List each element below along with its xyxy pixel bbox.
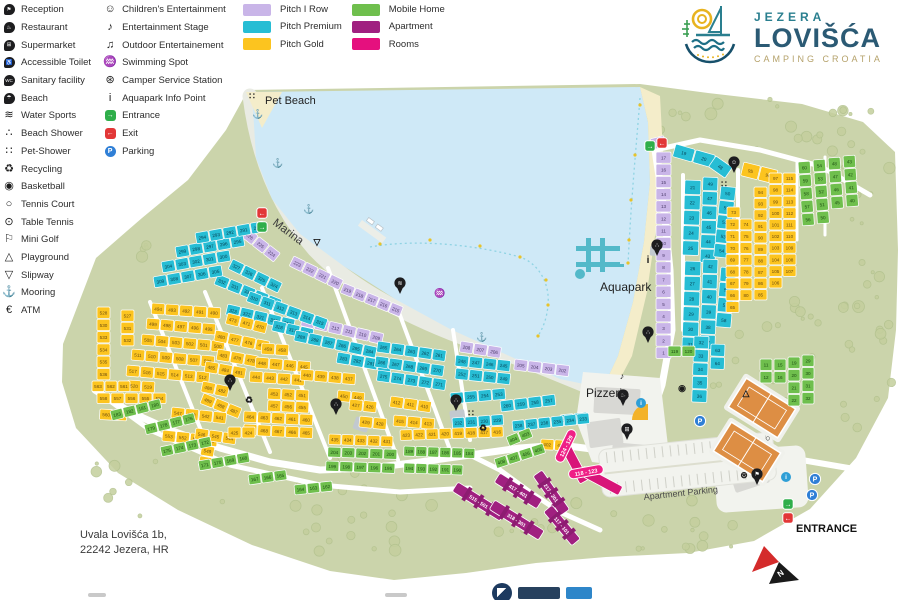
svg-text:238: 238 [514,423,523,429]
svg-text:107: 107 [786,269,794,274]
svg-text:80: 80 [743,293,749,298]
svg-text:114: 114 [786,188,794,193]
svg-text:31: 31 [805,384,811,389]
legend-item-pet-shower: ∷Pet-Shower [0,143,91,161]
mini-golf-icon: ⚐ [2,234,16,245]
svg-text:46: 46 [707,210,713,215]
svg-text:34: 34 [698,367,704,372]
svg-text:535: 535 [100,360,108,365]
pitch-type-label: Rooms [389,39,419,50]
legend-item-label: Supermarket [21,40,75,51]
svg-text:468: 468 [260,428,268,433]
svg-text:418: 418 [467,430,475,435]
svg-text:36: 36 [697,394,703,399]
svg-text:254: 254 [481,393,490,399]
svg-text:428: 428 [376,421,385,427]
info-badge: i [781,472,791,482]
legend-item-parking: PParking [101,143,226,161]
pitch-type-pitch-premium: Pitch Premium [243,18,342,35]
camper-service-station-icon: ⊛ [103,75,117,86]
partner-logo-wordmark2 [566,587,592,599]
svg-text:69: 69 [730,258,736,263]
svg-text:459: 459 [264,346,272,352]
svg-text:→: → [259,224,266,231]
svg-text:562: 562 [107,384,115,389]
svg-text:560: 560 [102,412,110,417]
svg-text:56: 56 [805,217,811,222]
svg-text:50: 50 [725,191,731,197]
svg-text:33: 33 [698,354,704,359]
svg-text:402: 402 [543,442,551,447]
svg-text:465: 465 [302,430,310,435]
svg-text:71: 71 [730,234,736,239]
svg-text:530: 530 [100,323,108,328]
svg-text:22: 22 [690,200,696,205]
svg-text:556: 556 [128,396,136,401]
legend-item-label: Swimming Spot [122,57,188,68]
partner-logo-icon [492,583,512,600]
svg-text:←: ← [659,140,666,147]
svg-text:519: 519 [144,384,152,390]
svg-text:63: 63 [715,348,721,353]
svg-text:105: 105 [772,269,780,274]
svg-text:259: 259 [517,401,526,407]
svg-text:463: 463 [260,415,268,420]
svg-text:43: 43 [847,159,853,164]
svg-text:414: 414 [410,420,419,426]
color-swatch [243,4,271,16]
svg-text:236: 236 [540,420,549,426]
svg-text:103: 103 [772,246,780,251]
parking-badge: P [694,415,705,426]
svg-text:47: 47 [833,174,839,179]
pitch-cluster: 563562561 [92,381,130,392]
buoy [638,103,641,106]
pitch-cluster: 435434433432431 [329,434,393,447]
svg-text:231: 231 [467,419,475,425]
svg-text:498: 498 [163,323,172,329]
svg-text:100: 100 [772,211,780,216]
svg-text:21: 21 [791,386,797,391]
svg-text:12: 12 [661,216,667,221]
slipway-icon: ▽ [2,270,16,281]
buoy [627,238,630,241]
legend-item-mini-golf: ⚐Mini Golf [0,231,91,249]
svg-text:42: 42 [708,264,714,269]
svg-text:←: ← [259,210,266,217]
svg-text:99: 99 [773,199,779,204]
pitch-cluster: 74757677787980 [740,219,752,301]
pitch-type-col1: Pitch I RowPitch PremiumPitch Gold [243,1,342,53]
pet-area-icon: ∷ [721,179,727,189]
svg-text:451: 451 [298,393,306,398]
pitch-type-label: Pitch Premium [280,21,342,32]
svg-text:440: 440 [303,373,312,379]
svg-text:203: 203 [344,450,352,455]
svg-text:502: 502 [186,341,195,347]
svg-text:192: 192 [429,467,437,472]
legend-item-outdoor-entertainement: ♫Outdoor Entertainement [101,36,226,54]
pitch-type-label: Pitch I Row [280,4,328,15]
svg-text:54: 54 [719,248,725,254]
pitch-cluster: 453452451 [267,388,309,401]
svg-text:458: 458 [278,347,286,353]
parking-badge: P [809,473,820,484]
svg-text:202: 202 [558,368,567,374]
svg-text:→: → [785,501,792,508]
legend-item-label: Outdoor Entertainement [122,40,223,51]
svg-text:32: 32 [805,396,811,401]
legend-item-label: Exit [122,128,138,139]
brand-name-top: JEZERA [754,10,883,24]
legend-item-label: Parking [122,146,154,157]
svg-text:250: 250 [486,374,495,380]
svg-text:45: 45 [834,200,840,205]
svg-text:232: 232 [454,420,462,426]
svg-text:434: 434 [344,438,352,443]
svg-text:461: 461 [288,417,296,422]
svg-text:47: 47 [707,196,713,201]
svg-text:184: 184 [465,451,473,456]
svg-text:15: 15 [777,363,783,368]
svg-text:35: 35 [697,380,703,385]
svg-text:511: 511 [134,353,142,359]
svg-text:65: 65 [730,305,736,310]
services-legend-col1: ⚑Reception♨Restaurant⊞Supermarket♿Access… [0,1,91,319]
legend-item-camper-service-station: ⊛Camper Service Station [101,72,226,90]
svg-text:38: 38 [705,325,711,330]
svg-text:533: 533 [100,335,108,340]
address-line2: 22242 Jezera, HR [80,543,169,558]
svg-text:253: 253 [495,392,504,398]
svg-text:437: 437 [345,376,354,382]
svg-text:119: 119 [671,349,679,354]
svg-text:501: 501 [200,342,209,348]
svg-text:252: 252 [458,372,467,378]
aquapark-info-icon: i [647,255,650,266]
legend-item-label: ATM [21,305,40,316]
svg-text:93: 93 [758,201,764,206]
svg-text:447: 447 [272,362,281,368]
brand-name-main: LOVIŠĆA [754,24,883,52]
svg-text:553: 553 [165,434,174,440]
color-swatch [243,21,271,33]
footer-fragment [88,593,106,597]
svg-text:64: 64 [715,361,721,366]
map-label-pizzeria: Pizzeria [586,386,629,400]
sanitary-facility-icon: WC [2,75,16,86]
svg-text:532: 532 [124,338,132,343]
pitch-type-label: Apartment [389,21,433,32]
svg-text:i: i [640,400,642,407]
legend-item-accessible-toilet: ♿Accessible Toilet [0,54,91,72]
svg-text:517: 517 [129,369,138,375]
svg-text:420: 420 [441,431,449,436]
legend-item-label: Water Sports [21,110,76,121]
entrance-badge: → [645,141,655,151]
svg-text:514: 514 [171,372,180,378]
svg-text:☺: ☺ [731,160,737,166]
svg-text:90: 90 [758,236,764,241]
svg-text:∴: ∴ [655,243,659,249]
legend-item-label: Camper Service Station [122,75,222,86]
svg-text:32: 32 [699,340,705,345]
buoy [626,261,629,264]
parking-icon: P [103,146,117,157]
svg-text:110: 110 [786,234,794,239]
svg-text:509: 509 [162,355,171,361]
svg-text:201: 201 [372,451,380,456]
svg-text:66: 66 [730,293,736,298]
svg-text:233: 233 [579,416,588,422]
svg-text:11: 11 [764,363,769,368]
svg-text:14: 14 [661,192,667,197]
svg-text:53: 53 [818,176,824,181]
svg-text:200: 200 [386,452,394,457]
buoy [546,303,549,306]
legend-item-label: Beach Shower [21,128,83,139]
svg-text:188: 188 [417,449,425,454]
svg-text:495: 495 [205,326,214,332]
svg-text:198: 198 [342,464,350,469]
svg-text:≋: ≋ [397,281,402,287]
aquapark-info-point-icon: i [103,93,117,104]
svg-text:202: 202 [358,451,366,456]
svg-text:112: 112 [786,211,794,216]
svg-text:78: 78 [743,269,749,274]
svg-text:25: 25 [688,246,694,251]
svg-text:496: 496 [191,325,200,331]
accessible-toilet-icon: ♿ [2,57,16,68]
svg-text:48: 48 [832,161,838,166]
svg-text:234: 234 [566,418,575,424]
svg-text:197: 197 [356,465,364,470]
svg-text:94: 94 [758,190,764,195]
svg-text:86: 86 [758,281,764,286]
svg-text:85: 85 [758,293,764,298]
svg-text:92: 92 [758,213,764,218]
camper-service-icon: ⊛ [740,470,748,480]
svg-text:45: 45 [706,225,712,230]
svg-text:426: 426 [366,404,375,410]
pet-shower-icon: ∷ [2,146,16,157]
map-label-pet-beach: Pet Beach [265,95,316,107]
svg-text:28: 28 [689,296,695,301]
svg-text:106: 106 [772,281,780,286]
svg-text:547: 547 [174,411,183,417]
svg-text:456: 456 [284,404,292,409]
legend-item-beach: ☂Beach [0,89,91,107]
legend-item-recycling: ♻Recycling [0,160,91,178]
svg-text:98: 98 [773,188,779,193]
svg-text:415: 415 [396,419,405,425]
legend-item-label: Entrance [122,110,160,121]
pitch-cluster: 1716151413121110987654321 [656,152,671,358]
pitch-type-mobile-home: Mobile Home [352,1,445,18]
svg-text:248: 248 [458,359,467,365]
brand-logo: JEZERA LOVIŠĆA CAMPING CROATIA [676,2,883,72]
map-label-entrance: ENTRANCE [796,523,857,535]
svg-text:13: 13 [661,204,667,209]
svg-text:120: 120 [685,349,693,354]
svg-text:3: 3 [662,326,665,331]
entrance-icon: → [103,110,117,121]
camping-map-page: 1817161514131211109876543211920482122232… [0,0,900,600]
svg-text:6: 6 [662,290,665,295]
svg-text:448: 448 [258,361,267,367]
svg-text:429: 429 [362,420,371,426]
svg-text:249: 249 [500,376,509,382]
svg-text:513: 513 [185,373,194,379]
basketball-icon: ◉ [2,181,16,192]
pitch-type-col2: Mobile HomeApartmentRooms [352,1,445,53]
svg-text:58: 58 [721,318,727,323]
svg-text:497: 497 [177,324,186,330]
svg-text:52: 52 [819,189,825,194]
svg-text:257: 257 [545,398,554,404]
svg-text:444: 444 [252,374,260,380]
svg-text:8: 8 [662,265,665,270]
slipway-icon: ▽ [313,237,322,247]
legend-item-childrens-entertainment: ☺Children's Entertainment [101,1,226,19]
svg-text:260: 260 [503,403,512,409]
recycling-icon: ♻ [2,164,16,175]
brand-tagline: CAMPING CROATIA [754,54,883,64]
svg-text:59: 59 [803,178,809,183]
svg-text:19: 19 [791,361,797,366]
svg-text:73: 73 [731,210,737,215]
buoy [629,198,632,201]
pitch-cluster: 194193192191190 [404,463,463,475]
legend-item-tennis-court: ○Tennis Court [0,196,91,214]
svg-text:421: 421 [428,432,436,437]
pitch-type-apartment: Apartment [352,18,445,35]
svg-text:21: 21 [690,185,696,190]
svg-text:74: 74 [743,222,749,227]
legend-item-entrance: →Entrance [101,107,226,125]
svg-text:466: 466 [288,430,296,435]
svg-text:17: 17 [661,155,667,160]
svg-text:115: 115 [786,176,794,181]
legend-item-label: Tennis Court [21,199,74,210]
svg-text:505: 505 [144,338,153,344]
buoy [518,255,521,258]
svg-text:455: 455 [298,405,306,410]
svg-text:516: 516 [143,370,152,376]
svg-text:419: 419 [454,431,462,436]
legend-item-entertainment-stage: ♪Entertainment Stage [101,19,226,37]
beach-icon: ☂ [2,93,16,104]
swimming-spot-icon: ♒ [103,57,117,68]
recycling-icon: ♻ [479,423,487,433]
tennis-icon: ○ [765,433,770,443]
exit-badge: ← [783,513,793,523]
buoy [478,244,481,247]
svg-text:561: 561 [120,384,128,389]
svg-text:101: 101 [772,223,780,228]
legend-item-label: Beach [21,93,48,104]
beach-shower-icon: ∴ [2,128,16,139]
svg-text:22: 22 [791,398,797,403]
svg-text:111: 111 [786,223,793,228]
svg-text:423: 423 [402,433,410,438]
svg-text:108: 108 [786,257,794,262]
pitch-type-rooms: Rooms [352,36,445,53]
address-line1: Uvala Lovišća 1b, [80,528,169,543]
svg-text:464: 464 [246,414,254,419]
svg-text:199: 199 [328,464,336,469]
legend-item-exit: ←Exit [101,125,226,143]
legend-item-label: Reception [21,4,64,15]
services-legend-col2: ☺Children's Entertainment♪Entertainment … [101,1,226,319]
svg-text:416: 416 [493,430,501,435]
svg-text:555: 555 [142,396,150,401]
legend-item-label: Restaurant [21,22,67,33]
svg-text:432: 432 [370,438,378,443]
svg-text:245: 245 [500,363,509,369]
svg-text:203: 203 [544,366,553,372]
legend-item-label: Children's Entertainment [122,4,226,15]
svg-text:431: 431 [383,439,391,444]
recycling-icon: ♻ [245,395,253,405]
svg-text:⚑: ⚑ [754,471,759,478]
services-legend: ⚑Reception♨Restaurant⊞Supermarket♿Access… [0,1,226,319]
svg-text:76: 76 [743,246,749,251]
entrance-badge: → [783,499,793,509]
svg-text:88: 88 [758,258,764,263]
svg-text:75: 75 [743,234,749,239]
svg-text:235: 235 [553,419,562,425]
entertainment-stage-icon: ♪ [103,22,117,33]
svg-text:51: 51 [819,202,825,207]
svg-text:23: 23 [689,215,695,220]
svg-text:246: 246 [486,361,495,367]
legend-item-atm: €ATM [0,302,91,320]
pitch-cluster: 204203202201200 [328,447,397,459]
svg-text:→: → [647,143,654,150]
svg-text:164: 164 [296,487,305,493]
svg-text:422: 422 [415,432,423,437]
svg-text:187: 187 [429,450,437,455]
svg-text:16: 16 [661,168,667,173]
svg-text:9: 9 [662,253,665,258]
svg-text:512: 512 [199,375,208,381]
svg-text:510: 510 [148,354,157,360]
svg-text:438: 438 [331,375,340,381]
svg-text:460: 460 [302,417,310,422]
svg-text:552: 552 [179,435,188,441]
svg-text:30: 30 [805,371,811,376]
svg-text:531: 531 [124,326,132,331]
legend-item-label: Aquapark Info Point [122,93,205,104]
svg-text:255: 255 [467,394,476,400]
mooring-icon: ⚓ [2,287,16,298]
footer-fragment [385,593,407,597]
svg-text:60: 60 [802,165,808,170]
legend-item-table-tennis: ⊙Table Tennis [0,213,91,231]
svg-text:109: 109 [786,246,794,251]
svg-text:91: 91 [758,224,764,229]
svg-text:57: 57 [804,204,810,209]
svg-text:453: 453 [270,391,278,396]
svg-text:452: 452 [284,392,292,397]
svg-text:11: 11 [661,229,666,234]
svg-text:229: 229 [493,418,501,424]
legend-item-label: Recycling [21,164,62,175]
svg-text:413: 413 [424,421,433,427]
svg-text:204: 204 [531,364,540,370]
buoy [633,153,636,156]
